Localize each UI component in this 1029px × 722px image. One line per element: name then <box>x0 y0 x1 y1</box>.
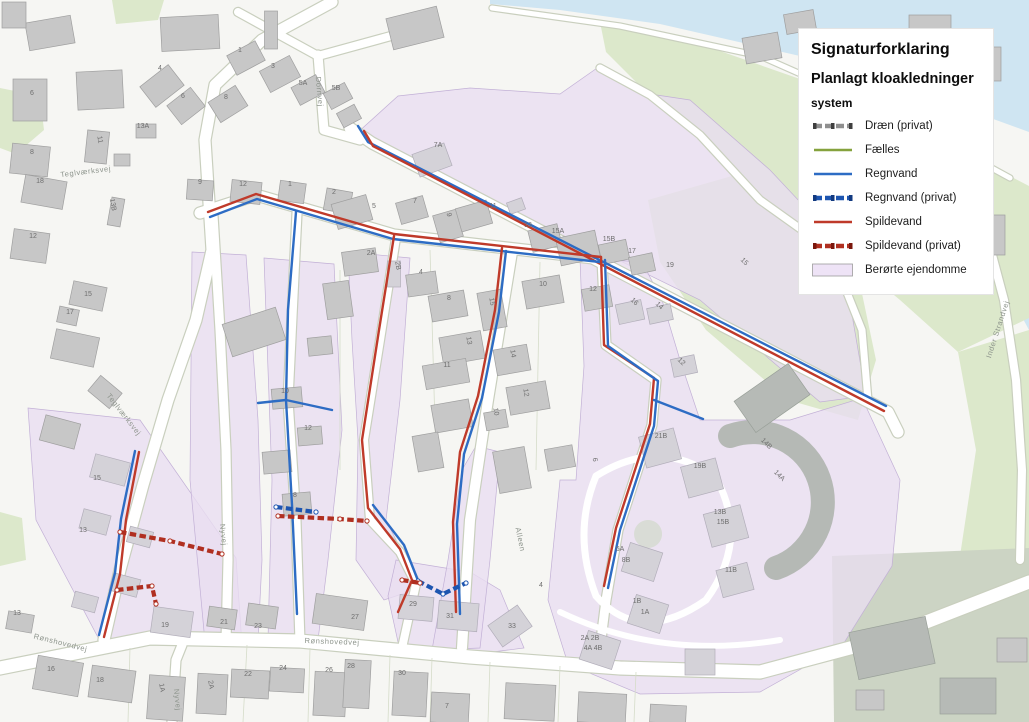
house-number-label: 11 <box>95 136 103 144</box>
legend-item-label: Spildevand <box>865 216 922 228</box>
house-number-label: 12 <box>589 286 597 293</box>
house-number-label: 4 <box>419 269 423 276</box>
building <box>544 445 575 472</box>
house-number-label: 15 <box>487 297 495 306</box>
house-number-label: 11 <box>489 203 496 210</box>
house-number-label: 29 <box>409 601 417 608</box>
manhole-node <box>365 519 369 523</box>
house-number-label: 4A 4B <box>584 645 603 652</box>
regnvand-swatch-icon <box>811 167 855 181</box>
house-number-label: 1 <box>288 181 292 188</box>
legend-item-label: Spildevand (privat) <box>865 240 961 252</box>
legend-item-regnvand: Regnvand <box>811 162 981 186</box>
house-number-label: 10 <box>539 281 547 288</box>
house-number-label: 8B <box>622 557 631 564</box>
house-number-label: 19 <box>666 262 674 269</box>
manhole-node <box>441 592 445 596</box>
house-number-label: 6 <box>30 90 34 97</box>
building <box>269 667 304 693</box>
building <box>856 690 884 710</box>
building <box>323 280 354 319</box>
house-number-label: 17 <box>66 309 74 316</box>
building <box>160 15 220 52</box>
house-number-label: 13 <box>13 610 21 617</box>
house-number-label: 18 <box>36 178 44 185</box>
building <box>278 180 307 203</box>
house-number-label: 16 <box>47 666 55 673</box>
building <box>262 450 292 474</box>
house-number-label: 5A <box>299 80 308 87</box>
house-number-label: 15A <box>552 228 565 235</box>
house-number-label: 19B <box>694 463 707 470</box>
house-number-label: 12 <box>239 181 247 188</box>
manhole-node <box>168 539 172 543</box>
house-number-label: 5B <box>332 85 341 92</box>
house-number-label: 33 <box>508 623 516 630</box>
draen_privat-swatch-icon <box>811 119 855 133</box>
house-number-label: 23 <box>254 623 262 630</box>
house-number-label: 6 <box>181 93 185 100</box>
legend-item-spildevand: Spildevand <box>811 210 981 234</box>
house-number-label: 7A <box>434 142 443 149</box>
house-number-label: 3 <box>271 63 275 70</box>
house-number-label: 2A <box>367 250 376 257</box>
house-number-label: 14 <box>508 349 516 358</box>
house-number-label: 15 <box>93 475 101 482</box>
manhole-node <box>150 584 154 588</box>
house-number-label: 13B <box>714 509 727 516</box>
building <box>246 603 279 629</box>
building <box>84 130 109 164</box>
house-number-label: 22 <box>244 671 252 678</box>
manhole-node <box>314 510 318 514</box>
legend-group-label: system <box>811 96 981 110</box>
manhole-node <box>400 578 404 582</box>
house-number-label: 13 <box>464 336 472 345</box>
house-number-label: 12 <box>304 425 312 432</box>
house-number-label: 31 <box>446 613 454 620</box>
house-number-label: 8 <box>224 94 228 101</box>
spildevand_privat-swatch-icon <box>811 239 855 253</box>
building <box>437 600 479 631</box>
building <box>313 671 347 717</box>
legend-subtitle: Planlagt kloakledninger <box>811 71 981 87</box>
map-decor-path <box>634 520 662 548</box>
house-number-label: 1A <box>641 609 650 616</box>
regnvand_privat-swatch-icon <box>811 191 855 205</box>
building <box>88 665 136 703</box>
building <box>577 692 627 722</box>
building <box>430 692 470 722</box>
legend-item-faelles: Fælles <box>811 138 981 162</box>
manhole-node <box>418 581 422 585</box>
street-name-label: Rønshovedvej <box>304 636 359 647</box>
building <box>685 649 715 675</box>
building <box>114 154 130 166</box>
house-number-label: 15 <box>84 291 92 298</box>
house-number-label: 10 <box>491 407 499 416</box>
legend-item-label: Berørte ejendomme <box>865 264 967 276</box>
house-number-label: 13 <box>79 527 87 534</box>
house-number-label: 4 <box>158 65 162 72</box>
building <box>307 336 333 356</box>
house-number-label: 15B <box>603 236 616 243</box>
building <box>76 70 124 110</box>
house-number-label: 12 <box>29 233 37 240</box>
house-number-label: 4 <box>539 582 543 589</box>
spildevand-swatch-icon <box>811 215 855 229</box>
house-number-label: 28 <box>347 663 355 670</box>
house-number-label: 21 <box>220 619 228 626</box>
building <box>493 447 532 494</box>
map-stage: 46813A1168181213B91212135A5B15177A579111… <box>0 0 1029 722</box>
legend-item-spildevand_privat: Spildevand (privat) <box>811 234 981 258</box>
legend-item-label: Regnvand (privat) <box>865 192 956 204</box>
manhole-node <box>274 505 278 509</box>
manhole-node <box>115 588 119 592</box>
legend-item-beroerte: Berørte ejendomme <box>811 258 981 282</box>
house-number-label: 17 <box>628 248 636 255</box>
legend-item-label: Fælles <box>865 144 900 156</box>
legend-item-draen_privat: Dræn (privat) <box>811 114 981 138</box>
building <box>392 671 428 717</box>
house-number-label: 13 <box>524 222 532 229</box>
house-number-label: 19 <box>161 622 169 629</box>
house-number-label: 27 <box>351 614 359 621</box>
house-number-label: 2 <box>332 189 336 196</box>
building <box>2 2 26 28</box>
building <box>940 678 996 714</box>
beroerte-swatch-icon <box>811 263 855 277</box>
house-number-label: 1B <box>633 598 642 605</box>
faelles-swatch-icon <box>811 143 855 157</box>
house-number-label: 30 <box>398 670 406 677</box>
house-number-label: 11B <box>725 567 737 574</box>
house-number-label: 8 <box>293 492 297 499</box>
house-number-label: 5 <box>372 203 376 210</box>
house-number-label: 11 <box>443 362 450 369</box>
building <box>265 11 278 49</box>
manhole-node <box>276 514 280 518</box>
green-area <box>0 512 26 566</box>
building <box>997 638 1027 662</box>
house-number-label: 24 <box>279 665 287 672</box>
manhole-node <box>220 552 224 556</box>
legend-item-regnvand_privat: Regnvand (privat) <box>811 186 981 210</box>
house-number-label: 15B <box>717 519 730 526</box>
house-number-label: 13A <box>137 123 150 130</box>
building <box>207 606 238 630</box>
house-number-label: 9 <box>198 179 202 186</box>
house-number-label: 8 <box>30 149 34 156</box>
building <box>504 683 556 722</box>
building <box>150 606 193 637</box>
legend-item-label: Regnvand <box>865 168 917 180</box>
house-number-label: 2A 2B <box>581 635 600 642</box>
manhole-node <box>154 602 158 606</box>
legend-title: Signaturforklaring <box>811 41 981 59</box>
building <box>13 79 47 121</box>
house-number-label: 6A <box>616 546 625 553</box>
manhole-node <box>118 530 122 534</box>
house-number-label: 10 <box>281 388 289 395</box>
house-number-label: 1 <box>238 47 242 54</box>
manhole-node <box>464 581 468 585</box>
house-number-label: 18 <box>96 677 104 684</box>
legend-item-label: Dræn (privat) <box>865 120 933 132</box>
building <box>581 285 612 312</box>
house-number-label: 12 <box>521 388 529 397</box>
house-number-label: 7 <box>413 198 417 205</box>
house-number-label: 8 <box>447 295 451 302</box>
house-number-label: 21B <box>655 433 668 440</box>
house-number-label: 7 <box>445 703 449 710</box>
building <box>650 704 687 722</box>
manhole-node <box>338 517 342 521</box>
legend-items: Dræn (privat)FællesRegnvandRegnvand (pri… <box>811 114 981 282</box>
house-number-label: 26 <box>325 667 333 674</box>
legend-panel: Signaturforklaring Planlagt kloakledning… <box>798 28 994 295</box>
